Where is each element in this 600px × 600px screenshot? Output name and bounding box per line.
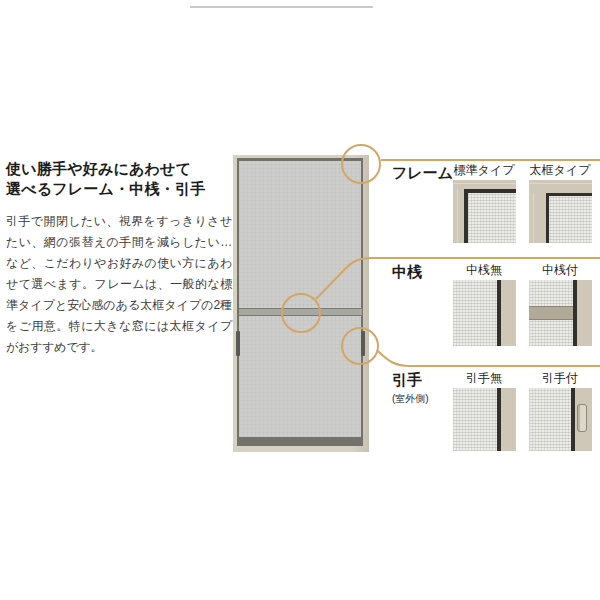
door-mesh <box>239 161 361 437</box>
thumb-frame-edge-vertical <box>464 189 468 243</box>
thumb-middle-rail <box>529 306 573 320</box>
row-label-frame: フレーム <box>392 164 453 183</box>
handle-without-caption: 引手無 <box>452 371 516 385</box>
row-label-rail: 中桟 <box>392 263 422 282</box>
frame-standard-column: 標準タイプ <box>452 163 516 243</box>
thumb-frame-edge-horizontal <box>464 189 516 193</box>
page-title-line1: 使い勝手や好みにあわせて <box>6 159 205 179</box>
thumb-frame-edge-horizontal <box>546 193 592 196</box>
thumb-frame-top-rail <box>529 180 592 193</box>
handle-callout-line <box>378 351 600 366</box>
rail-without-thumbnail <box>453 280 516 346</box>
thumb-frame-top-rail <box>453 180 516 189</box>
door-right-handle <box>361 331 365 356</box>
rail-with-column: 中桟付 <box>528 263 592 346</box>
page-title: 使い勝手や好みにあわせて 選べるフレーム・中桟・引手 <box>6 159 205 198</box>
frame-standard-caption: 標準タイプ <box>452 163 516 177</box>
handle-with-column: 引手付 <box>528 371 592 451</box>
thumb-pull-handle <box>577 404 587 432</box>
intro-paragraph: 引手で開閉したい、視界をすっきりさせたい、網の張替えの手間を減らしたい…など、こ… <box>6 211 232 358</box>
door-left-handle <box>236 331 240 356</box>
rail-without-caption: 中桟無 <box>452 263 516 277</box>
thumb-frame-left-rail <box>453 180 464 243</box>
handle-with-caption: 引手付 <box>528 371 592 385</box>
rail-with-thumbnail <box>529 280 592 346</box>
frame-standard-thumbnail <box>453 180 516 243</box>
handle-without-thumbnail <box>453 388 516 451</box>
thumb-side-rail <box>501 388 516 451</box>
handle-without-column: 引手無 <box>452 371 516 451</box>
top-border-line <box>190 6 373 8</box>
thumb-frame-edge-vertical <box>546 193 549 243</box>
thumb-side-rail <box>501 280 516 346</box>
rail-with-caption: 中桟付 <box>528 263 592 277</box>
row-note-outdoor-side: (室外側) <box>392 392 429 406</box>
screen-door-illustration <box>233 155 369 452</box>
thumb-side-rail <box>577 280 592 346</box>
frame-thick-thumbnail <box>529 180 592 243</box>
rail-without-column: 中桟無 <box>452 263 516 346</box>
door-middle-rail <box>239 308 362 316</box>
door-inner-frame <box>237 158 363 446</box>
handle-with-thumbnail <box>529 388 592 451</box>
row-label-handle: 引手 <box>392 371 422 390</box>
frame-thick-caption: 太框タイプ <box>528 163 592 177</box>
page-title-line2: 選べるフレーム・中桟・引手 <box>6 179 205 199</box>
page-canvas: 使い勝手や好みにあわせて 選べるフレーム・中桟・引手 引手で開閉したい、視界をす… <box>0 0 600 600</box>
frame-thick-column: 太框タイプ <box>528 163 592 243</box>
